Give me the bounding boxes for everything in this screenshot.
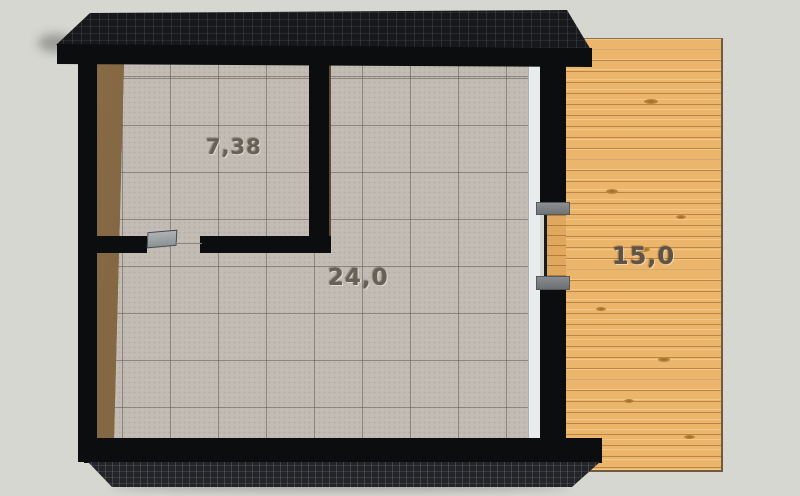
partition-wall-horizontal-left bbox=[78, 236, 147, 253]
area-label-main-room: 24,0 bbox=[328, 265, 389, 291]
partition-wall-horizontal-right bbox=[200, 236, 331, 253]
right-exterior-wall-upper bbox=[540, 46, 566, 206]
glass-wall-strip bbox=[528, 60, 540, 438]
floor-plan-render: 7,38 24,0 15,0 bbox=[0, 0, 800, 496]
wood-knot bbox=[624, 399, 634, 403]
wood-knot bbox=[658, 357, 670, 362]
deck-door-frame-bottom bbox=[536, 276, 570, 290]
door-threshold-line bbox=[176, 243, 202, 244]
area-label-deck: 15,0 bbox=[612, 242, 675, 270]
area-label-small-room: 7,38 bbox=[206, 135, 262, 159]
wood-knot bbox=[606, 189, 618, 194]
wood-knot bbox=[644, 99, 658, 104]
partition-wall-vertical bbox=[309, 56, 331, 252]
wood-knot bbox=[684, 435, 695, 439]
wood-knot bbox=[676, 215, 686, 219]
wood-knot bbox=[596, 307, 606, 311]
deck-door-frame-top bbox=[536, 202, 570, 215]
bottom-wall-beam bbox=[84, 438, 602, 463]
left-exterior-wall bbox=[78, 44, 97, 462]
interior-door-leaf bbox=[147, 230, 178, 249]
right-exterior-wall-lower bbox=[540, 290, 566, 440]
